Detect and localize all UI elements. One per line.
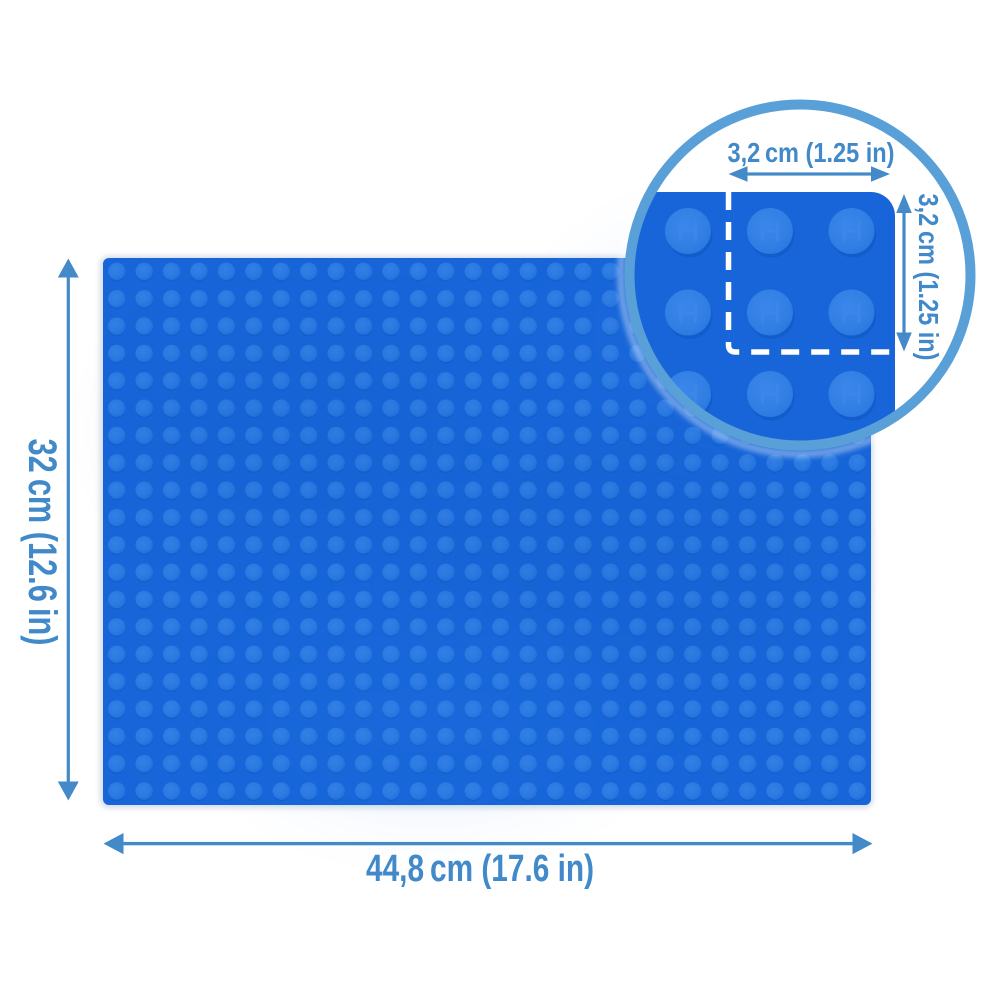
svg-text:44,8 cm (17.6 in): 44,8 cm (17.6 in) (366, 848, 594, 890)
svg-text:3,2 cm (1.25 in): 3,2 cm (1.25 in) (728, 137, 895, 168)
svg-text:32 cm (12.6 in): 32 cm (12.6 in) (20, 439, 64, 646)
svg-text:3,2 cm (1.25 in): 3,2 cm (1.25 in) (913, 194, 944, 361)
